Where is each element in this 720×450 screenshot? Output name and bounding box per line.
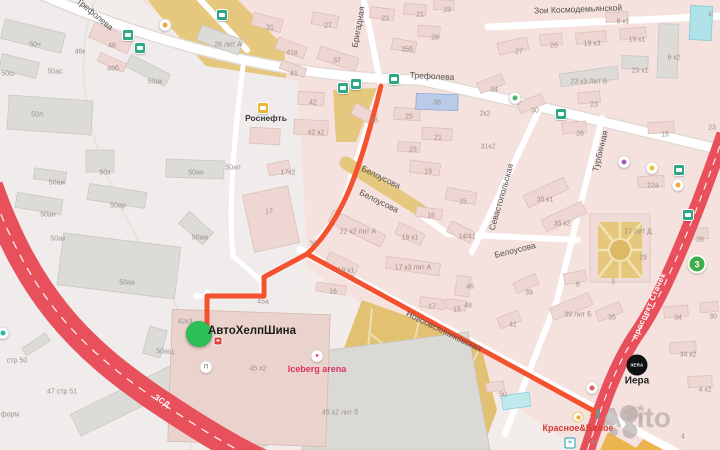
building-footprint <box>657 24 679 79</box>
building-footprint <box>404 3 427 16</box>
building-footprint <box>294 119 329 136</box>
building-footprint <box>578 91 601 104</box>
building-footprint <box>622 56 648 70</box>
route-number: 3 <box>690 257 705 272</box>
building-footprint <box>620 27 647 40</box>
iera-badge[interactable]: IIERA <box>627 355 648 376</box>
transit-stop-icon[interactable]: Н <box>565 438 576 449</box>
poi-icon[interactable] <box>672 179 685 192</box>
building-footprint <box>250 127 281 145</box>
store-cart-icon[interactable] <box>573 412 584 423</box>
building-footprint <box>418 25 441 38</box>
map-canvas[interactable]: ТрефолеваТрефолеваЗои КосмодемьянскойБри… <box>0 0 720 450</box>
building-footprint <box>298 91 325 105</box>
transit-stop-icon[interactable] <box>673 164 685 176</box>
poi-icon[interactable]: ♥ <box>311 350 324 363</box>
poi-icon[interactable] <box>509 92 522 105</box>
poi-icon[interactable] <box>586 382 599 395</box>
building-footprint <box>562 121 587 134</box>
building-footprint <box>648 121 675 133</box>
building-footprint <box>485 381 504 392</box>
transit-stop-icon[interactable] <box>555 108 567 120</box>
building-footprint <box>434 0 454 11</box>
transit-stop-icon[interactable] <box>122 29 134 41</box>
building-footprint <box>455 275 472 297</box>
poi-icon[interactable] <box>618 156 631 169</box>
building-footprint <box>7 95 93 135</box>
poi-icon[interactable]: П <box>200 361 213 374</box>
transit-stop-icon[interactable] <box>350 78 362 90</box>
building-footprint <box>606 11 628 22</box>
building-footprint <box>670 341 697 353</box>
building-footprint <box>166 159 225 179</box>
item-location-marker[interactable] <box>186 321 212 347</box>
transit-stop-icon[interactable] <box>337 82 349 94</box>
transit-stop-icon[interactable] <box>216 9 228 21</box>
poi-icon[interactable] <box>646 162 659 175</box>
shop-icon[interactable] <box>214 337 223 346</box>
fuel-station-icon[interactable] <box>257 102 269 114</box>
building-footprint <box>86 150 114 172</box>
building-footprint <box>422 127 453 141</box>
building-footprint <box>398 141 420 152</box>
building-footprint <box>700 301 719 313</box>
building-footprint <box>664 305 689 318</box>
building-footprint <box>540 33 563 46</box>
poi-icon[interactable] <box>159 19 172 32</box>
traffic-light-icon[interactable] <box>596 409 600 419</box>
transit-stop-icon[interactable] <box>388 73 400 85</box>
transit-stop-icon[interactable] <box>134 42 146 54</box>
building-footprint <box>576 31 607 45</box>
transit-stop-icon[interactable] <box>682 209 694 221</box>
building-footprint <box>638 175 665 187</box>
transit-route-badge[interactable]: 3 <box>688 255 707 274</box>
building-footprint <box>688 375 713 387</box>
map-graphics <box>0 0 720 450</box>
